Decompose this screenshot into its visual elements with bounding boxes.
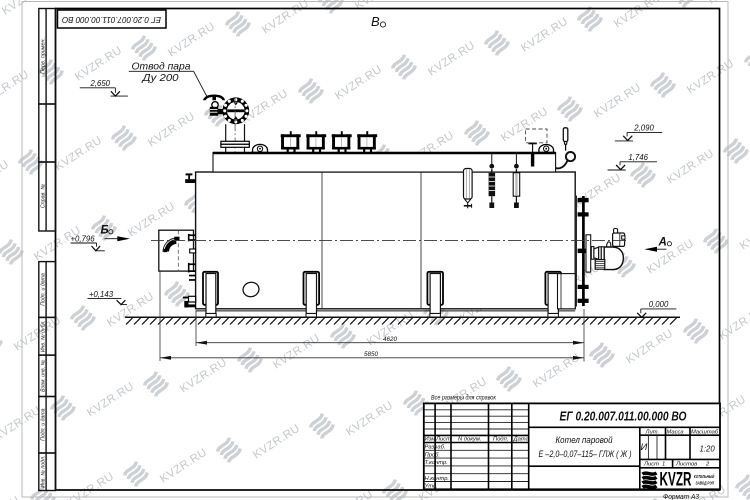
svg-text:5850: 5850: [364, 351, 379, 358]
svg-text:1: 1: [662, 462, 665, 468]
svg-text:Е –2,0–0,07–115– ГЛЖ ( Ж ): Е –2,0–0,07–115– ГЛЖ ( Ж ): [539, 449, 632, 460]
svg-text:Лист: Лист: [643, 462, 659, 468]
svg-text:Ду 200: Ду 200: [141, 72, 178, 84]
svg-text:Взам. инв. №: Взам. инв. №: [40, 359, 46, 391]
svg-text:Б: Б: [101, 225, 109, 237]
svg-text:И: И: [641, 442, 648, 453]
svg-text:Справ. №: Справ. №: [40, 184, 46, 209]
svg-text:+0,143: +0,143: [89, 290, 114, 299]
svg-text:+0,796: +0,796: [71, 234, 96, 243]
svg-text:2,650: 2,650: [90, 79, 111, 88]
svg-text:Н.контр.: Н.контр.: [425, 476, 450, 482]
svg-text:Котел паровой: Котел паровой: [556, 435, 614, 446]
svg-text:Инв. № подл.: Инв. № подл.: [40, 456, 46, 488]
svg-text:Все размеры для справок: Все размеры для справок: [431, 394, 497, 402]
svg-text:Подп. и дата: Подп. и дата: [40, 408, 46, 441]
svg-text:0,000: 0,000: [649, 300, 669, 309]
svg-text:ЗАВОД РЭП: ЗАВОД РЭП: [696, 481, 715, 487]
svg-text:1,746: 1,746: [628, 153, 648, 162]
svg-text:Листов: Листов: [675, 462, 697, 468]
svg-text:Масштаб: Масштаб: [691, 429, 719, 435]
svg-text:Разраб.: Разраб.: [425, 445, 446, 451]
svg-text:KVZR: KVZR: [660, 469, 692, 491]
svg-text:В: В: [371, 14, 380, 29]
svg-text:1:20: 1:20: [700, 445, 716, 454]
svg-text:Подп.: Подп.: [493, 437, 508, 443]
svg-text:Подп. и дата: Подп. и дата: [40, 273, 46, 306]
svg-text:Инв. № дубл.: Инв. № дубл.: [40, 320, 46, 352]
svg-text:ЕГ 0.20.007.011.00.000 ВО: ЕГ 0.20.007.011.00.000 ВО: [61, 15, 161, 24]
svg-text:Дата: Дата: [513, 437, 530, 443]
svg-text:Масса: Масса: [667, 429, 685, 435]
svg-text:Утв.: Утв.: [424, 484, 438, 490]
svg-text:Лист: Лист: [435, 437, 451, 443]
svg-text:Перв. примен.: Перв. примен.: [40, 38, 46, 74]
svg-text:Лит.: Лит.: [645, 429, 660, 435]
svg-text:ЕГ 0.20.007.011.00.000 ВО: ЕГ 0.20.007.011.00.000 ВО: [560, 409, 687, 424]
svg-text:Т.контр.: Т.контр.: [425, 460, 448, 466]
svg-text:N докум.: N докум.: [458, 437, 481, 443]
svg-text:А: А: [658, 236, 667, 248]
svg-text:2,090: 2,090: [633, 124, 654, 133]
svg-text:Формат А3: Формат А3: [663, 494, 699, 500]
svg-text:Проб.: Проб.: [425, 452, 441, 458]
svg-text:4620: 4620: [383, 336, 398, 343]
svg-text:Отвод пара: Отвод пара: [132, 61, 191, 73]
